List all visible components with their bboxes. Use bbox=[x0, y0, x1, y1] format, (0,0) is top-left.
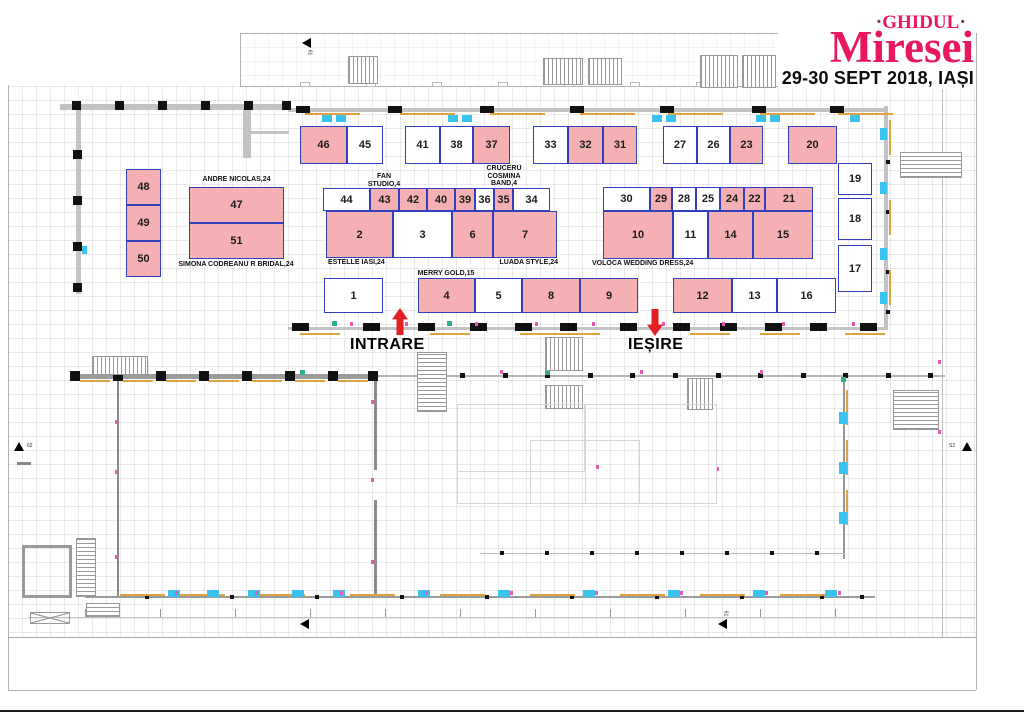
plan-shape bbox=[400, 113, 455, 115]
plan-shape bbox=[285, 371, 295, 381]
plan-shape bbox=[839, 462, 847, 474]
plan-shape bbox=[928, 373, 933, 378]
plan-shape bbox=[72, 101, 81, 110]
plan-shape bbox=[839, 512, 847, 524]
plan-shape bbox=[440, 594, 485, 596]
brand-miresei: Miresei bbox=[780, 30, 974, 65]
plan-shape bbox=[288, 108, 886, 112]
plan-shape bbox=[243, 108, 251, 158]
plan-shape bbox=[722, 322, 725, 326]
plan-shape bbox=[886, 310, 890, 314]
booth-27: 27 bbox=[663, 126, 697, 164]
plan-shape bbox=[976, 33, 977, 690]
floor-plan: 62 S2 61 61 4645413837333231272623204849… bbox=[0, 0, 1024, 723]
booth-11: 11 bbox=[673, 211, 708, 259]
plan-shape bbox=[460, 609, 461, 617]
plan-shape bbox=[251, 131, 289, 134]
axis-bar-left bbox=[17, 462, 31, 465]
plan-shape bbox=[460, 373, 465, 378]
plan-vent bbox=[432, 82, 442, 87]
plan-shape bbox=[296, 106, 310, 113]
booth-38: 38 bbox=[440, 126, 473, 164]
plan-shape bbox=[673, 323, 690, 331]
plan-shape bbox=[73, 283, 82, 292]
plan-shape bbox=[332, 321, 337, 326]
plan-shape bbox=[545, 551, 549, 555]
plan-shape bbox=[825, 590, 837, 597]
entrance-label: INTRARE bbox=[350, 336, 425, 354]
plan-shape bbox=[300, 370, 305, 375]
plan-shape bbox=[845, 333, 885, 335]
plan-shape bbox=[838, 591, 841, 595]
plan-shape bbox=[235, 609, 236, 617]
plan-shape bbox=[889, 200, 891, 235]
plan-shape bbox=[782, 322, 785, 326]
plan-shape bbox=[938, 360, 941, 364]
plan-shape bbox=[70, 371, 80, 381]
axis-triangle-bottom-right bbox=[718, 619, 727, 629]
plan-shape bbox=[368, 371, 378, 381]
plan-shape bbox=[880, 292, 887, 304]
booth-49: 49 bbox=[126, 205, 161, 241]
plan-shape bbox=[242, 371, 252, 381]
plan-shape bbox=[580, 113, 635, 115]
plan-shape bbox=[760, 609, 761, 617]
plan-shape bbox=[725, 551, 729, 555]
plan-shape bbox=[690, 333, 730, 335]
booth-25: 25 bbox=[696, 187, 720, 211]
plan-shape bbox=[660, 106, 674, 113]
plan-shape bbox=[295, 380, 325, 382]
plan-hh bbox=[86, 603, 120, 617]
booth-46: 46 bbox=[300, 126, 347, 164]
plan-shape bbox=[680, 591, 683, 595]
plan-shape bbox=[292, 590, 304, 597]
plan-shape bbox=[716, 373, 721, 378]
plan-shape bbox=[425, 591, 428, 595]
booth-42: 42 bbox=[399, 188, 427, 211]
plan-shape bbox=[82, 246, 87, 254]
plan-shape bbox=[570, 106, 584, 113]
plan-shape bbox=[753, 590, 765, 597]
plan-shape bbox=[770, 115, 780, 122]
plan-shape bbox=[350, 594, 395, 596]
plan-shape bbox=[292, 323, 309, 331]
plan-shape bbox=[685, 609, 686, 617]
booth-9: 9 bbox=[580, 278, 638, 313]
vendor-label-fan-studio: FAN STUDIO,4 bbox=[362, 173, 406, 188]
plan-shape bbox=[328, 371, 338, 381]
booth-30: 30 bbox=[603, 187, 650, 211]
plan-shape bbox=[595, 591, 598, 595]
vendor-label-simona-codreanu: SIMONA CODREANU R BRIDAL,24 bbox=[172, 261, 300, 269]
plan-shape bbox=[475, 322, 478, 326]
axis-triangle-bottom-left bbox=[300, 619, 309, 629]
plan-shape bbox=[310, 609, 311, 617]
booth-19: 19 bbox=[838, 163, 872, 195]
plan-shape bbox=[841, 377, 846, 382]
plan-shape bbox=[860, 323, 877, 331]
plan-shape bbox=[418, 590, 430, 597]
plan-shape bbox=[880, 182, 887, 194]
booth-37: 37 bbox=[473, 126, 510, 164]
vendor-label-luada-style: LUADA STYLE,24 bbox=[492, 259, 558, 267]
plan-shape bbox=[305, 113, 360, 115]
plan-shape bbox=[338, 380, 368, 382]
plan-shape bbox=[815, 551, 819, 555]
booth-50: 50 bbox=[126, 241, 161, 277]
plan-shape bbox=[400, 595, 404, 599]
plan-shape bbox=[28, 617, 975, 618]
booth-2: 2 bbox=[326, 211, 393, 258]
axis-label-left: 62 bbox=[27, 444, 33, 449]
axis-triangle-left bbox=[14, 442, 24, 451]
plan-shape bbox=[156, 371, 166, 381]
plan-shape bbox=[405, 322, 408, 326]
plan-hh bbox=[900, 152, 962, 178]
plan-shape bbox=[209, 380, 239, 382]
booth-43: 43 bbox=[370, 188, 399, 211]
axis-triangle-top bbox=[302, 38, 311, 48]
plan-shape bbox=[282, 101, 291, 110]
booth-12: 12 bbox=[673, 278, 732, 313]
plan-shape bbox=[371, 478, 374, 482]
booth-13: 13 bbox=[732, 278, 777, 313]
plan-shape bbox=[333, 590, 345, 597]
plan-shape bbox=[490, 113, 545, 115]
plan-shape bbox=[560, 323, 577, 331]
booth-41: 41 bbox=[405, 126, 440, 164]
booth-39: 39 bbox=[455, 188, 475, 211]
plan-shape bbox=[230, 595, 234, 599]
plan-shape bbox=[73, 196, 82, 205]
plan-shape bbox=[201, 101, 210, 110]
plan-shape bbox=[752, 106, 766, 113]
plan-shape bbox=[73, 150, 82, 159]
plan-shape bbox=[850, 115, 860, 122]
booth-3: 3 bbox=[393, 211, 452, 258]
plan-hv bbox=[92, 356, 148, 375]
booth-44: 44 bbox=[323, 188, 370, 211]
plan-shape bbox=[810, 323, 827, 331]
plan-hv bbox=[742, 55, 776, 88]
plan-shape bbox=[770, 551, 774, 555]
plan-shape bbox=[363, 323, 380, 331]
plan-shape bbox=[503, 373, 508, 378]
booth-5: 5 bbox=[475, 278, 522, 313]
plan-shape bbox=[8, 85, 9, 690]
booth-23: 23 bbox=[730, 126, 763, 164]
plan-shape bbox=[115, 555, 118, 559]
plan-shape bbox=[652, 115, 662, 122]
plan-shape bbox=[336, 115, 346, 122]
event-date: 29-30 SEPT 2018, IAȘI bbox=[780, 68, 974, 89]
vendor-label-voloca-wedding-dress: VOLOCA WEDDING DRESS,24 bbox=[592, 260, 697, 268]
booth-10: 10 bbox=[603, 211, 673, 259]
plan-shape bbox=[520, 333, 560, 335]
plan-shape bbox=[480, 106, 494, 113]
axis-triangle-right bbox=[962, 442, 972, 451]
exit-label: IEȘIRE bbox=[628, 336, 683, 354]
booth-1: 1 bbox=[324, 278, 383, 313]
plan-shape bbox=[756, 115, 766, 122]
booth-45: 45 bbox=[347, 126, 383, 164]
booth-29: 29 bbox=[650, 187, 672, 211]
axis-label-right: S2 bbox=[949, 444, 955, 449]
axis-label-top: 61 bbox=[306, 50, 311, 56]
plan-shape bbox=[838, 113, 893, 115]
plan-shape bbox=[418, 323, 435, 331]
plan-hv bbox=[700, 55, 738, 88]
plan-vent bbox=[498, 82, 508, 87]
booth-32: 32 bbox=[568, 126, 603, 164]
booth-16: 16 bbox=[777, 278, 836, 313]
plan-shape bbox=[350, 322, 353, 326]
plan-out bbox=[585, 404, 717, 504]
plan-shape bbox=[485, 595, 489, 599]
booth-34: 34 bbox=[513, 188, 550, 211]
plan-shape bbox=[500, 370, 503, 374]
plan-shape bbox=[371, 400, 374, 404]
plan-shape bbox=[760, 370, 763, 374]
plan-hv bbox=[545, 337, 583, 371]
plan-shape bbox=[252, 380, 282, 382]
plan-shape bbox=[635, 551, 639, 555]
plan-shape bbox=[515, 323, 532, 331]
plan-shape bbox=[680, 551, 684, 555]
booth-40: 40 bbox=[427, 188, 455, 211]
plan-shape bbox=[60, 104, 290, 110]
plan-shape bbox=[886, 160, 890, 164]
plan-shape bbox=[588, 373, 593, 378]
booth-31: 31 bbox=[603, 126, 637, 164]
plan-shape bbox=[385, 609, 386, 617]
plan-shape bbox=[80, 380, 110, 382]
plan-shape bbox=[244, 101, 253, 110]
plan-shape bbox=[207, 590, 219, 597]
vendor-label-merry-gold: MERRY GOLD,15 bbox=[416, 270, 476, 278]
plan-shape bbox=[583, 590, 595, 597]
plan-shape bbox=[860, 595, 864, 599]
plan-shape bbox=[160, 609, 161, 617]
plan-shape bbox=[371, 560, 374, 564]
booth-8: 8 bbox=[522, 278, 580, 313]
plan-shape bbox=[889, 120, 891, 155]
plan-shape bbox=[530, 594, 575, 596]
booth-18: 18 bbox=[838, 198, 872, 240]
plan-shape bbox=[673, 373, 678, 378]
plan-shape bbox=[123, 380, 153, 382]
booth-22: 22 bbox=[744, 187, 765, 211]
plan-shape bbox=[668, 590, 680, 597]
plan-shape bbox=[640, 370, 643, 374]
plan-shape bbox=[780, 594, 825, 596]
plan-shape bbox=[115, 420, 118, 424]
plan-shape bbox=[500, 551, 504, 555]
plan-shape bbox=[889, 270, 891, 305]
plan-shape bbox=[592, 322, 595, 326]
plan-shape bbox=[765, 323, 782, 331]
plan-shape bbox=[630, 373, 635, 378]
brand-logo: ·GHIDUL· Miresei 29-30 SEPT 2018, IAȘI bbox=[778, 10, 976, 89]
plan-outg bbox=[22, 545, 72, 598]
plan-shape bbox=[388, 106, 402, 113]
plan-shape bbox=[886, 373, 891, 378]
booth-4: 4 bbox=[418, 278, 475, 313]
plan-shape bbox=[938, 430, 941, 434]
plan-shape bbox=[199, 371, 209, 381]
plan-shape bbox=[448, 115, 458, 122]
plan-hh bbox=[76, 538, 96, 597]
plan-shape bbox=[835, 609, 836, 617]
plan-shape bbox=[168, 590, 180, 597]
axis-label-bottom: 61 bbox=[722, 611, 727, 617]
plan-shape bbox=[590, 551, 594, 555]
plan-hv bbox=[348, 56, 378, 84]
plan-hh bbox=[417, 352, 447, 412]
plan-shape bbox=[880, 248, 887, 260]
plan-shape bbox=[852, 322, 855, 326]
plan-shape bbox=[447, 321, 452, 326]
plan-shape bbox=[120, 594, 165, 596]
plan-hv bbox=[543, 58, 583, 85]
plan-shape bbox=[175, 591, 178, 595]
booth-17: 17 bbox=[838, 245, 872, 292]
plan-shape bbox=[8, 637, 976, 638]
booth-26: 26 bbox=[697, 126, 730, 164]
plan-shape bbox=[535, 609, 536, 617]
booth-20: 20 bbox=[788, 126, 837, 164]
plan-hh bbox=[893, 390, 939, 430]
plan-shape bbox=[240, 33, 241, 86]
plan-shape bbox=[801, 373, 806, 378]
plan-shape bbox=[322, 115, 332, 122]
plan-shape bbox=[480, 553, 845, 554]
plan-shape bbox=[620, 323, 637, 331]
plan-shape bbox=[666, 115, 676, 122]
plan-shape bbox=[73, 242, 82, 251]
booth-35: 35 bbox=[494, 188, 513, 211]
booth-6: 6 bbox=[452, 211, 493, 258]
booth-21: 21 bbox=[765, 187, 813, 211]
booth-48: 48 bbox=[126, 169, 161, 205]
plan-shape bbox=[760, 333, 800, 335]
plan-shape bbox=[498, 590, 510, 597]
booth-7: 7 bbox=[493, 211, 557, 258]
plan-shape bbox=[765, 591, 768, 595]
vendor-label-estelle-iasi: ESTELLE IASI,24 bbox=[328, 259, 406, 267]
plan-shape bbox=[166, 380, 196, 382]
booth-14: 14 bbox=[708, 211, 753, 259]
plan-hv bbox=[588, 58, 622, 85]
plan-shape bbox=[510, 591, 513, 595]
plan-shape bbox=[315, 595, 319, 599]
plan-shape bbox=[470, 323, 487, 331]
plan-shape bbox=[340, 591, 343, 595]
plan-shape bbox=[430, 333, 470, 335]
booth-28: 28 bbox=[672, 187, 696, 211]
plan-xbox bbox=[30, 612, 70, 624]
plan-vent bbox=[300, 82, 310, 87]
plan-shape bbox=[255, 591, 258, 595]
booth-15: 15 bbox=[753, 211, 813, 259]
plan-shape bbox=[620, 594, 665, 596]
plan-shape bbox=[700, 594, 745, 596]
plan-shape bbox=[668, 113, 723, 115]
plan-shape bbox=[880, 128, 887, 140]
booth-33: 33 bbox=[533, 126, 568, 164]
vendor-label-cruceru-cosmina-band: CRUCERU COSMINA BAND,4 bbox=[481, 165, 527, 188]
plan-shape bbox=[158, 101, 167, 110]
plan-shape bbox=[115, 101, 124, 110]
booth-51: 51 bbox=[189, 223, 284, 259]
plan-shape bbox=[830, 106, 844, 113]
plan-shape bbox=[117, 379, 119, 598]
plan-shape bbox=[8, 690, 976, 691]
plan-shape bbox=[535, 322, 538, 326]
plan-shape bbox=[760, 113, 815, 115]
plan-shape bbox=[300, 333, 340, 335]
plan-shape bbox=[248, 590, 260, 597]
plan-shape bbox=[839, 412, 847, 424]
plan-shape bbox=[115, 470, 118, 474]
booth-24: 24 bbox=[720, 187, 744, 211]
plan-shape bbox=[560, 333, 600, 335]
plan-shape bbox=[0, 710, 1024, 712]
vendor-label-andre-nicolas: ANDRE NICOLAS,24 bbox=[189, 176, 284, 184]
plan-vent bbox=[630, 82, 640, 87]
booth-36: 36 bbox=[475, 188, 494, 211]
plan-shape bbox=[374, 500, 377, 598]
plan-shape bbox=[374, 379, 377, 470]
plan-shape bbox=[610, 609, 611, 617]
plan-shape bbox=[462, 115, 472, 122]
booth-47: 47 bbox=[189, 187, 284, 223]
